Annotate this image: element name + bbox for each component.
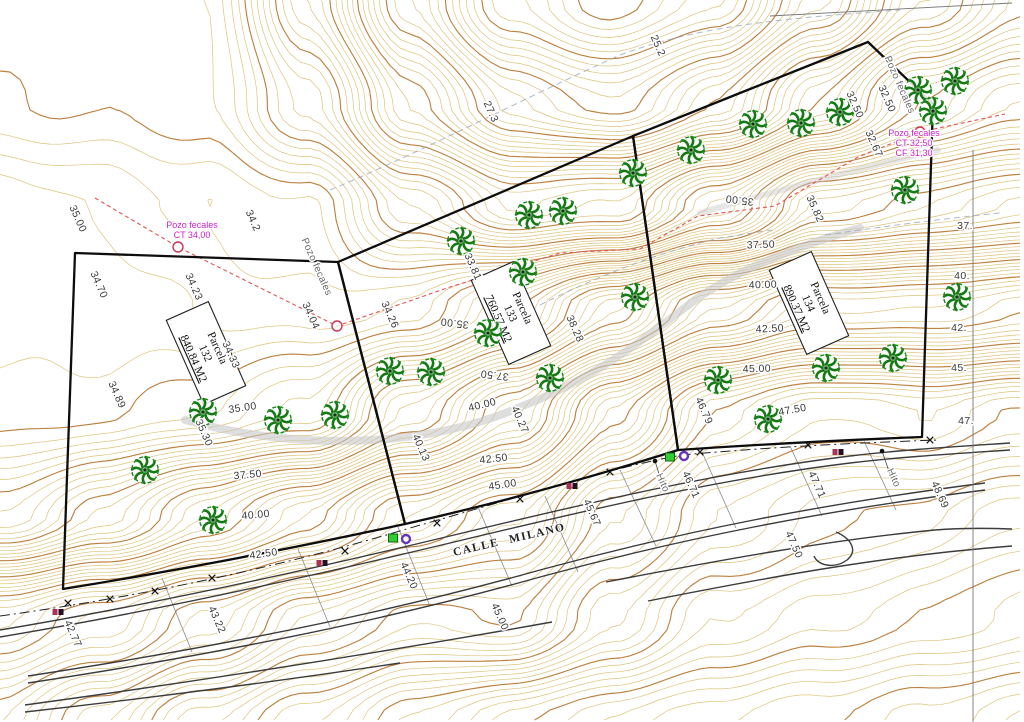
contour-line (347, 457, 1020, 721)
elevation-label: 40.27 (509, 404, 531, 435)
elevation-label: 35.00 (228, 400, 258, 416)
contour-line (0, 339, 1020, 688)
contour-line (231, 0, 1020, 253)
elevation-label: 45.00 (743, 363, 772, 376)
contour-line (482, 0, 747, 59)
elevation-label: 47.50 (783, 529, 805, 560)
tree-icon (740, 111, 767, 138)
elevation-label: 42.50 (249, 546, 279, 562)
elevation-label: 47.71 (806, 469, 828, 500)
elevation-label: 47. (958, 415, 974, 427)
elevation-label: 45. (951, 362, 967, 374)
boundary-marker-icon (833, 449, 838, 455)
elevation-label: 32.67 (863, 128, 885, 159)
hito-label: Hito (653, 472, 671, 494)
road-edge (606, 528, 1012, 582)
tree-icon (920, 98, 947, 125)
elevation-label: 37.50 (233, 468, 262, 482)
utility-box-icon (666, 453, 675, 461)
elevation-label: 34.70 (88, 269, 110, 300)
tree-icon (448, 228, 475, 255)
sewer-manhole-icon (173, 242, 183, 252)
contour-line (1006, 711, 1020, 720)
tree-icon (200, 507, 227, 534)
boundary-marker-icon (59, 609, 64, 615)
contour-line (474, 0, 754, 66)
tree-icon (678, 137, 705, 164)
tree-icon (132, 457, 159, 484)
survey-point-icon (880, 449, 885, 454)
tree-icon (537, 365, 564, 392)
contour-line (352, 0, 892, 162)
tree-icon (944, 284, 971, 311)
manhole-ring-icon (402, 535, 410, 543)
tree-icon (942, 68, 969, 95)
boundary-marker-icon (567, 483, 572, 489)
elevation-label: 42.50 (755, 322, 784, 335)
tree-icon (418, 359, 445, 386)
contour-line (568, 592, 1020, 720)
contour-line (378, 476, 1020, 721)
boundary-marker-icon (573, 483, 578, 489)
contour-line (973, 694, 1020, 720)
site-plan-svg: CALLE MILANO Parcela132840.84 M2Parcela1… (0, 0, 1024, 722)
tree-icon (377, 358, 404, 385)
boundary-marker-icon (323, 560, 328, 566)
elevation-label: 34.89 (106, 379, 128, 410)
elevation-label: 34.2 (243, 208, 263, 233)
elevation-label: 42. (951, 322, 967, 334)
elevation-label: 32.50 (876, 83, 898, 114)
elevation-label: 35.00 (725, 192, 755, 207)
contour-line (347, 0, 901, 167)
contour-line (243, 397, 1020, 720)
elevation-label: 45.67 (581, 497, 603, 528)
elevation-label: 38.28 (564, 313, 586, 344)
contour-line (578, 0, 643, 20)
contour-line (0, 324, 1020, 663)
manhole-ring-icon (680, 452, 688, 460)
contour-line (845, 672, 1020, 720)
contour-line (258, 408, 1020, 720)
elevation-label: 45.00 (488, 477, 518, 493)
contour-line (386, 0, 851, 140)
tree-icon (322, 402, 349, 429)
site-plan-canvas: CALLE MILANO Parcela132840.84 M2Parcela1… (0, 0, 1024, 722)
survey-point-icon (653, 459, 658, 464)
elevation-label: 37. (957, 220, 973, 232)
boundary-marker-icon (317, 560, 322, 566)
tree-icon (620, 160, 647, 187)
elevation-label: 40.00 (241, 508, 270, 522)
tree-icon (516, 202, 543, 229)
contour-line (535, 570, 1020, 720)
contour-line (336, 0, 951, 177)
tree-icon (510, 259, 537, 286)
contour-line (493, 551, 1021, 720)
elevation-label: 40.00 (467, 396, 497, 414)
tree-icon (892, 177, 919, 204)
tree-icon (265, 407, 292, 434)
contour-line (604, 637, 1020, 720)
elevation-label: 37.50 (747, 239, 776, 252)
elevation-label: 47.50 (778, 402, 808, 419)
contour-line (563, 0, 664, 30)
tree-icon (705, 367, 732, 394)
tree-icon (475, 320, 502, 347)
boundary-marker-icon (839, 449, 844, 455)
boundary-marker-icon (53, 609, 58, 615)
tree-icon (550, 198, 577, 225)
street-name-label: CALLE MILANO (452, 521, 567, 559)
tree-icon (880, 345, 907, 372)
elevation-label: 25.2 (648, 33, 668, 58)
contour-line (399, 486, 1020, 720)
tree-icon (622, 284, 649, 311)
contour-line (257, 0, 1020, 241)
elevation-label: 34.04 (300, 300, 322, 331)
tree-icon (813, 355, 840, 382)
lot-line (162, 578, 192, 652)
contour-line (459, 0, 768, 83)
contour-line (739, 662, 1021, 720)
elevation-label: 40. (954, 270, 970, 282)
contour-line (412, 0, 831, 131)
elevation-label: 35.00 (67, 203, 89, 234)
elevation-label: 35.00 (440, 315, 470, 330)
elevation-label: 34.23 (183, 271, 205, 302)
contour-line (653, 651, 1020, 720)
elevation-label: 44.20 (398, 560, 420, 591)
tree-icon (788, 110, 815, 137)
elevation-label: 40.00 (749, 279, 778, 292)
sewer-manhole-icon (332, 321, 342, 331)
elevation-label: 43.22 (206, 604, 228, 635)
utility-box-icon (389, 534, 398, 542)
pozo-fecales-label: Pozo fecales (299, 236, 334, 297)
elevation-label: 45.00 (489, 601, 511, 632)
well-note-label: Pozo fecalesCT 34,00 (166, 220, 218, 240)
